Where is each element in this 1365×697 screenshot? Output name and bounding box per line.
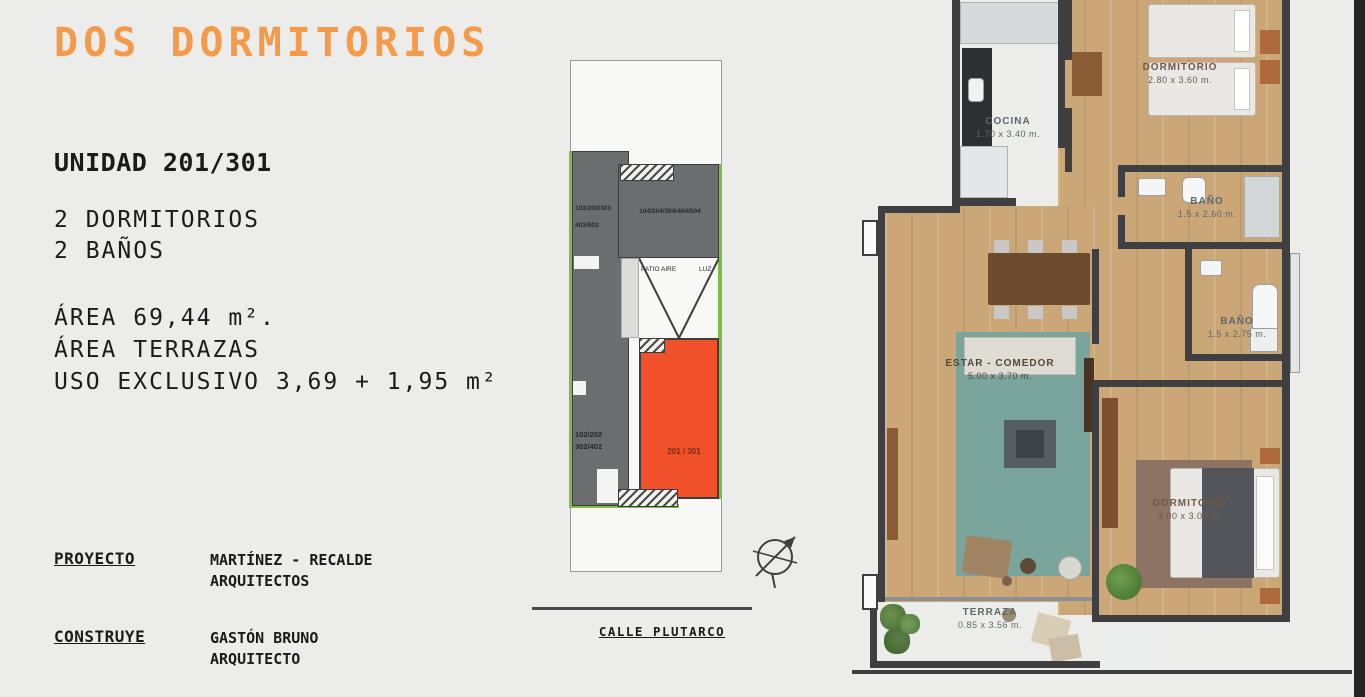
nightstand — [1260, 588, 1280, 604]
wardrobe — [1102, 398, 1118, 528]
patio-label-left: PATIO AIRE — [641, 266, 676, 273]
right-dark-strip — [1354, 0, 1365, 697]
chair — [994, 306, 1009, 319]
plant-icon — [900, 614, 920, 634]
site-cutout — [574, 256, 599, 269]
wall — [1092, 615, 1284, 622]
room-name: ESTAR - COMEDOR — [945, 358, 1054, 369]
dining-table — [988, 253, 1090, 305]
room-dims: 2.80 x 3.60 m. — [1105, 75, 1255, 86]
room-name: BAÑO — [1190, 196, 1223, 207]
site-label-line: 102/202 — [575, 429, 627, 441]
kitchen-sink — [968, 78, 984, 102]
bottom-edge-line — [852, 670, 1352, 674]
nightstand — [1260, 30, 1280, 54]
room-dims: 1.5 x 2.60 m. — [1152, 209, 1262, 220]
site-hatch-top — [620, 164, 674, 181]
room-name: COCINA — [985, 116, 1030, 127]
site-label-line: 302/402 — [575, 441, 627, 453]
page-title: DOS DORMITORIOS — [54, 20, 490, 66]
chair — [1028, 306, 1043, 319]
credit-name-line: GASTÓN BRUNO — [210, 628, 318, 649]
chair — [1062, 240, 1077, 253]
kitchen-cabinets — [960, 2, 1060, 44]
site-label-102: 102/202 302/402 — [575, 429, 627, 453]
credit-role: CONSTRUYE — [54, 627, 145, 646]
wall — [1065, 108, 1072, 172]
site-stair-core — [621, 258, 639, 338]
feature-baths: 2 BAÑOS — [54, 236, 260, 267]
wall — [1185, 249, 1192, 361]
site-label-103: 103/203/303 403/503 — [575, 204, 627, 230]
wall — [1099, 380, 1284, 387]
kitchen-appliance — [960, 146, 1008, 198]
site-label-line: 103/203/303 — [575, 204, 627, 213]
wall — [870, 661, 1100, 668]
wall — [1092, 249, 1099, 344]
area-line-1: ÁREA 69,44 m². — [54, 302, 498, 334]
wall — [1118, 242, 1284, 249]
brochure-page: DOS DORMITORIOS UNIDAD 201/301 2 DORMITO… — [0, 0, 1365, 697]
sliding-door-line — [885, 597, 1092, 601]
balcony-strip — [1290, 253, 1300, 373]
bed-blanket — [1202, 468, 1254, 578]
room-dims: 1.70 x 3.40 m. — [956, 129, 1060, 140]
credit-proyecto: PROYECTO — [54, 549, 135, 568]
room-label-dormitorio-1: DORMITORIO 2.80 x 3.60 m. — [1105, 62, 1255, 86]
site-label-104: 104/204/304/404/504 — [623, 208, 717, 215]
unit-title: UNIDAD 201/301 — [54, 148, 272, 177]
room-name: DORMITORIO — [1153, 498, 1228, 509]
street-edge-line — [532, 607, 752, 610]
floor-plan: COCINA 1.70 x 3.40 m. DORMITORIO 2.80 x … — [852, 0, 1300, 676]
coffee-table-tray — [1016, 430, 1044, 458]
floor-lamp — [1058, 556, 1082, 580]
feature-bedrooms: 2 DORMITORIOS — [54, 205, 260, 236]
wall — [1118, 165, 1284, 172]
credit-construye-name: GASTÓN BRUNO ARQUITECTO — [210, 628, 318, 670]
site-hatch-bottom — [618, 489, 678, 507]
plant-icon — [1106, 564, 1142, 600]
console — [887, 428, 898, 540]
room-label-dormitorio-2: DORMITORIO 3.00 x 3.00 m. — [1120, 498, 1260, 522]
chair — [994, 240, 1009, 253]
site-cutout — [573, 381, 586, 395]
site-cutout — [597, 469, 618, 503]
wall — [952, 0, 960, 206]
room-label-terraza: TERRAZA 0.85 x 3.56 m. — [920, 607, 1060, 631]
room-dims: 0.85 x 3.56 m. — [920, 620, 1060, 631]
wall — [1092, 380, 1099, 622]
wall — [952, 198, 1016, 206]
bath-sink — [1138, 178, 1166, 196]
entry-walk — [1102, 624, 1160, 664]
wall — [878, 206, 960, 213]
decor-circle — [1002, 576, 1012, 586]
decor-circle — [1020, 558, 1036, 574]
credit-construye: CONSTRUYE — [54, 627, 145, 646]
room-dims: 1.5 x 2.75 m. — [1187, 329, 1287, 340]
pillow — [1256, 476, 1274, 570]
wall-pier — [862, 220, 878, 256]
credit-role: PROYECTO — [54, 549, 135, 568]
area-line-2: ÁREA TERRAZAS — [54, 334, 498, 366]
wall — [878, 206, 885, 602]
site-label-unit: 201 / 301 — [653, 447, 715, 456]
area-line-3: USO EXCLUSIVO 3,69 + 1,95 m² — [54, 366, 498, 398]
wall — [870, 602, 877, 668]
pouf — [962, 535, 1013, 579]
unit-features: 2 DORMITORIOS 2 BAÑOS — [54, 205, 260, 267]
credit-name-line: MARTÍNEZ - RECALDE — [210, 550, 373, 571]
credit-name-line: ARQUITECTOS — [210, 571, 373, 592]
credit-name-line: ARQUITECTO — [210, 649, 318, 670]
room-name: BAÑO — [1220, 316, 1253, 327]
site-hatch-unit — [639, 338, 665, 353]
room-label-cocina: COCINA 1.70 x 3.40 m. — [956, 116, 1060, 140]
wall-pier — [862, 574, 878, 610]
room-name: TERRAZA — [963, 607, 1018, 618]
patio-label-right: LUZ — [699, 266, 711, 273]
street-label: CALLE PLUTARCO — [556, 624, 768, 639]
wall — [1282, 0, 1290, 622]
room-label-bano-1: BAÑO 1.5 x 2.60 m. — [1152, 196, 1262, 220]
room-name: DORMITORIO — [1143, 62, 1218, 73]
north-compass-icon — [748, 532, 802, 588]
unit-areas: ÁREA 69,44 m². ÁREA TERRAZAS USO EXCLUSI… — [54, 302, 498, 398]
bath-sink — [1200, 260, 1222, 276]
wall — [1118, 165, 1125, 197]
credit-proyecto-name: MARTÍNEZ - RECALDE ARQUITECTOS — [210, 550, 373, 592]
room-dims: 3.00 x 3.00 m. — [1120, 511, 1260, 522]
nightstand — [1260, 60, 1280, 84]
chair — [1062, 306, 1077, 319]
site-unit-highlight — [639, 338, 719, 499]
room-dims: 5.00 x 3.70 m. — [910, 371, 1090, 382]
dresser — [1072, 52, 1102, 96]
nightstand — [1260, 448, 1280, 464]
wall — [1065, 0, 1072, 60]
room-label-bano-2: BAÑO 1.5 x 2.75 m. — [1187, 316, 1287, 340]
room-label-estar-comedor: ESTAR - COMEDOR 5.00 x 3.70 m. — [910, 358, 1090, 382]
site-label-line: 403/503 — [575, 221, 627, 230]
cushion — [1048, 634, 1082, 663]
site-patio: PATIO AIRE LUZ — [639, 258, 719, 338]
chair — [1028, 240, 1043, 253]
wall — [1185, 354, 1284, 361]
pillow — [1234, 10, 1250, 52]
site-key-plan: PATIO AIRE LUZ 103/203/303 403/503 104/2… — [570, 60, 722, 572]
